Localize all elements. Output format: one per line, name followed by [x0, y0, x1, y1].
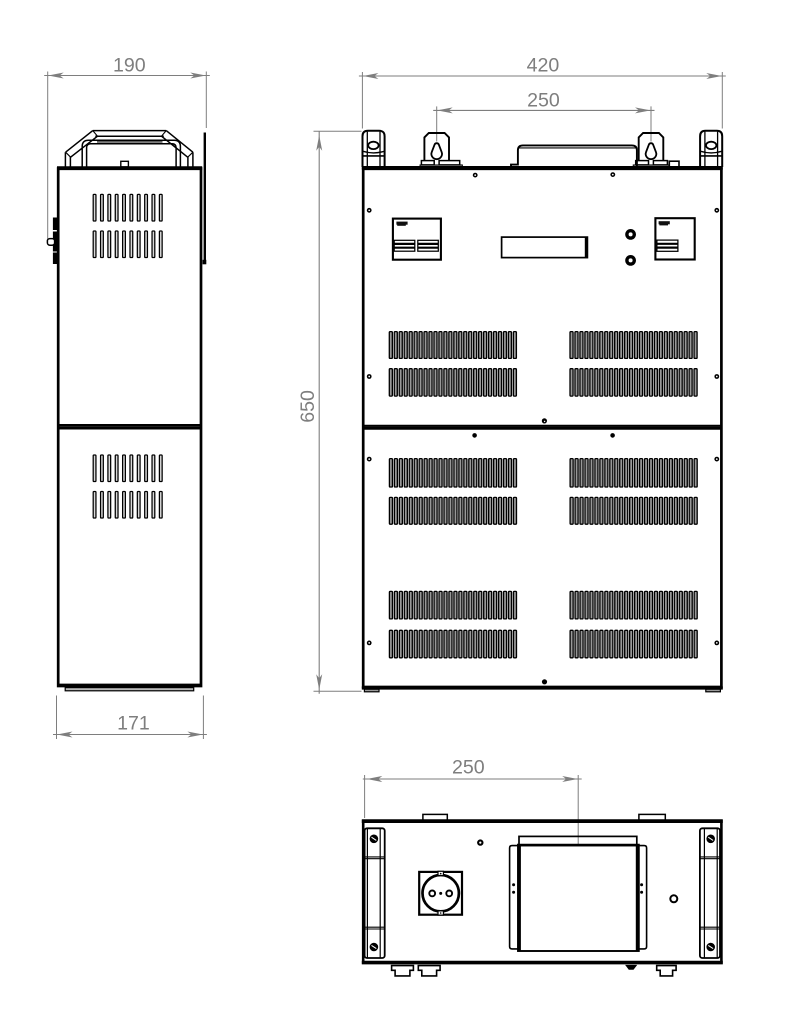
svg-text:420: 420	[527, 54, 560, 76]
svg-text:250: 250	[452, 756, 485, 778]
svg-text:250: 250	[527, 89, 560, 111]
svg-text:650: 650	[297, 390, 319, 423]
svg-text:171: 171	[117, 713, 150, 735]
svg-text:190: 190	[113, 55, 146, 77]
